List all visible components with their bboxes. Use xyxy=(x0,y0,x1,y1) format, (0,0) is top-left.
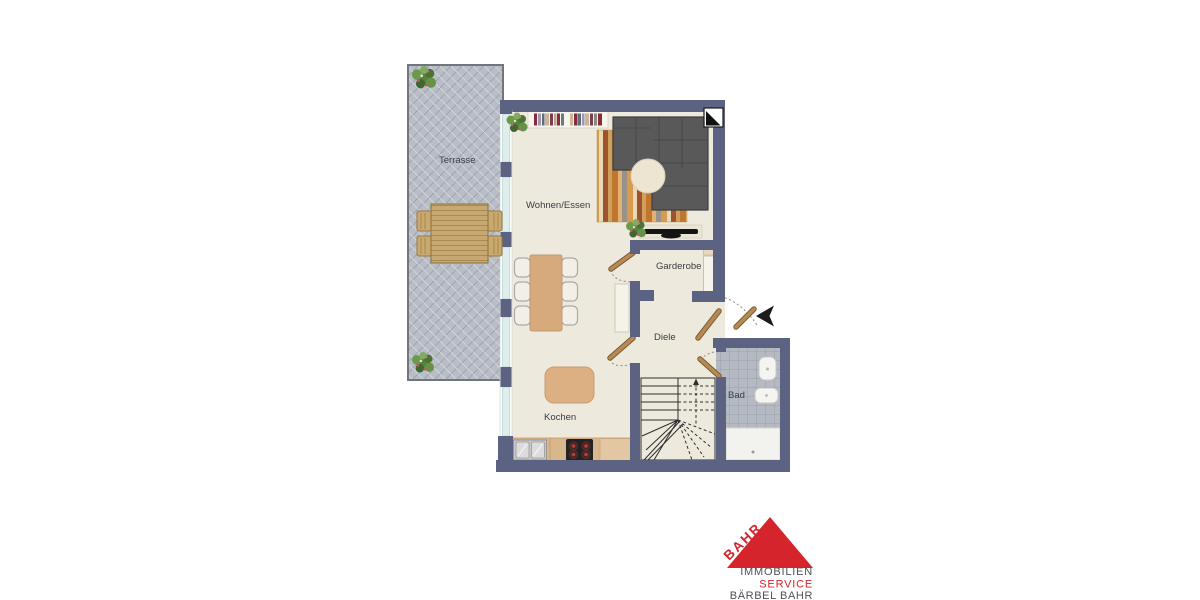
shower-drain-icon xyxy=(752,451,755,454)
stove-icon xyxy=(566,439,593,461)
room-label-garderobe: Garderobe xyxy=(656,261,701,272)
window xyxy=(503,387,510,436)
window xyxy=(503,177,510,232)
wall-top xyxy=(502,100,725,112)
entrance-arrow-icon xyxy=(756,306,774,327)
dining-table xyxy=(530,255,562,331)
wall-hall-left-b xyxy=(630,363,640,460)
dining-chair xyxy=(562,306,578,325)
room-label-kochen: Kochen xyxy=(544,412,576,423)
floorplan-drawing: Terrasse Wohnen/Essen Garderobe Diele Ko… xyxy=(0,0,1200,600)
wall-right-upper xyxy=(713,100,725,302)
coffee-table xyxy=(631,159,665,193)
wall-hall-left-a xyxy=(630,281,640,337)
wall-bottom xyxy=(496,460,790,472)
room-label-terrasse: Terrasse xyxy=(439,155,475,166)
logo-line-baerbel-bahr: BÄRBEL BAHR xyxy=(730,590,813,600)
wall-bath-left xyxy=(716,348,726,352)
washbasin-icon xyxy=(755,388,778,403)
wardrobe xyxy=(704,244,715,293)
dining-chair xyxy=(562,258,578,277)
room-label-diele: Diele xyxy=(654,332,676,343)
hall-cabinet xyxy=(615,284,629,332)
toilet-icon xyxy=(759,357,776,380)
floorplan-canvas: Terrasse Wohnen/Essen Garderobe Diele Ko… xyxy=(0,0,1200,600)
wall-bath-right xyxy=(780,338,790,464)
dining-chair xyxy=(515,282,531,301)
tv-sideboard xyxy=(638,225,702,239)
logo-line-immobilien: IMMOBILIEN xyxy=(740,566,813,578)
north-marker-icon xyxy=(704,108,723,127)
terrace-table xyxy=(431,204,488,263)
window xyxy=(503,317,510,367)
kitchen-sink-icon xyxy=(514,440,547,460)
company-logo: BAHR IMMOBILIEN SERVICE BÄRBEL BAHR xyxy=(721,517,813,600)
wall-living-garderobe xyxy=(630,240,725,250)
wall-garderobe-stub-right xyxy=(692,291,713,302)
kitchen-island xyxy=(545,367,594,403)
wall-garderobe-stub-left xyxy=(640,290,654,301)
room-label-bad: Bad xyxy=(728,390,745,401)
dining-chair xyxy=(515,258,531,277)
door-leaf xyxy=(736,309,754,327)
dining-set xyxy=(515,255,578,331)
dining-chair xyxy=(562,282,578,301)
window-wall xyxy=(498,100,513,462)
dining-chair xyxy=(515,306,531,325)
wall-bath-top xyxy=(713,338,790,348)
shower-tray xyxy=(726,428,780,460)
room-label-wohnen-essen: Wohnen/Essen xyxy=(526,200,590,211)
window xyxy=(503,247,510,299)
logo-line-service: SERVICE xyxy=(759,579,813,591)
bookshelf xyxy=(528,111,608,128)
